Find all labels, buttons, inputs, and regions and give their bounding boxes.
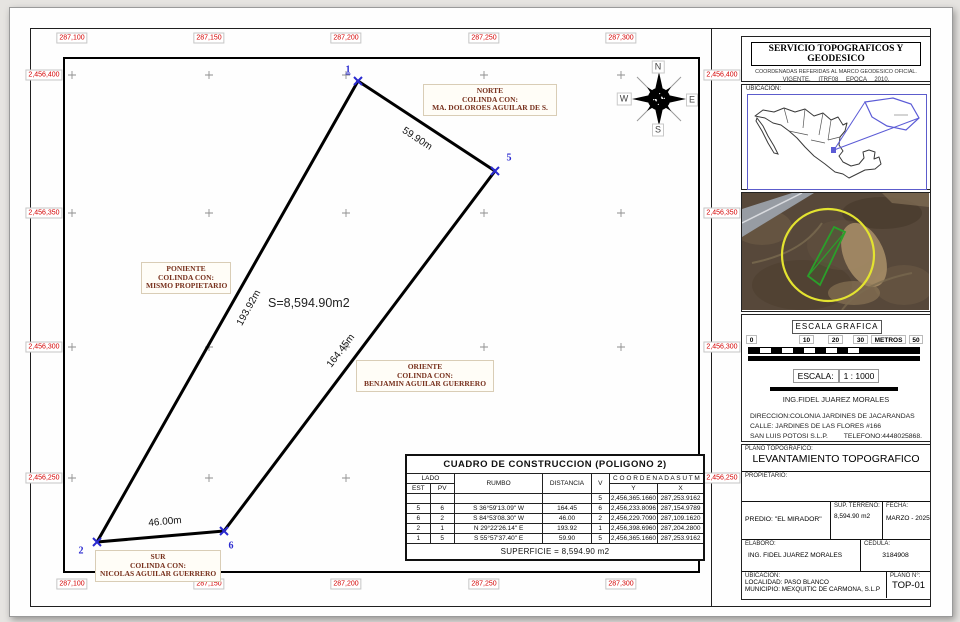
grid-x-label: 287,300 <box>605 33 636 44</box>
address-line-3: SAN LUIS POTOSI S.L.P. TELEFONO:44480258… <box>750 433 922 440</box>
elaboro-value: ING. FIDEL JUAREZ MORALES <box>742 547 860 559</box>
engineer-name: ING.FIDEL JUAREZ MORALES <box>742 395 930 404</box>
location-map-box: UBICACION: <box>741 84 931 190</box>
scale-ratio-row: ESCALA:1 : 1000 <box>742 366 930 384</box>
titleblock-row-plano: PLANO TOPOGRAFICO: LEVANTAMIENTO TOPOGRA… <box>742 445 930 471</box>
grid-x-label: 287,100 <box>56 579 87 590</box>
vertex-label-5: 5 <box>507 153 512 164</box>
slp-state-enlarged <box>865 98 919 130</box>
boundary-line: MISMO PROPIETARIO <box>146 282 226 291</box>
fecha-label: FECHA: <box>883 502 930 509</box>
col-header-y: Y <box>609 484 657 494</box>
boundary-east-box: ORIENTE COLINDA CON: BENJAMIN AGUILAR GU… <box>356 360 494 392</box>
elaboro-label: ELABORO: <box>742 540 860 547</box>
cedula-value: 3184908 <box>861 547 930 559</box>
scale-tick: 0 <box>746 335 757 344</box>
mexico-map <box>747 94 927 190</box>
grid-x-label: 287,150 <box>193 33 224 44</box>
address-line-2: CALLE: JARDINES DE LAS FLORES #166 <box>750 423 922 430</box>
firm-subtitle-1: COORDENADAS REFERIDAS AL MARCO GEODESICO… <box>742 69 930 75</box>
vertex-label-6: 6 <box>229 541 234 552</box>
boundary-south-box: SUR COLINDA CON: NICOLAS AGUILAR GUERRER… <box>95 550 221 582</box>
scale-bar-upper <box>748 347 920 354</box>
boundary-west-box: PONIENTE COLINDA CON: MISMO PROPIETARIO <box>141 262 231 294</box>
titleblock-row-propietario: PROPIETARIO: <box>742 471 930 501</box>
col-header-x: X <box>658 484 704 494</box>
state-boundaries <box>784 108 840 143</box>
compass-rose-icon <box>632 72 686 126</box>
vertex-label-1: 1 <box>346 65 351 76</box>
grid-y-label: 2,456,300 <box>25 342 62 353</box>
grid-y-label: 2,456,250 <box>703 473 740 484</box>
plan-title: LEVANTAMIENTO TOPOGRAFICO <box>742 453 930 465</box>
grid-y-label: 2,456,400 <box>703 70 740 81</box>
plano-no-value: TOP-01 <box>887 579 930 591</box>
plano-topografico-label: PLANO TOPOGRAFICO: <box>742 445 930 452</box>
scale-tick: 20 <box>828 335 843 344</box>
fecha-value: MARZO - 2025 <box>883 509 930 522</box>
boundary-line: BENJAMIN AGUILAR GUERRERO <box>361 380 489 389</box>
plano-no-label: PLANO N°: <box>887 572 930 579</box>
col-header-pv: PV <box>430 484 454 494</box>
title-block: PLANO TOPOGRAFICO: LEVANTAMIENTO TOPOGRA… <box>741 444 931 600</box>
scale-bar-lower <box>748 356 920 361</box>
signature-line <box>770 387 898 391</box>
scale-tick: 10 <box>799 335 814 344</box>
boundary-line: NICOLAS AGUILAR GUERRERO <box>100 570 216 579</box>
grid-y-label: 2,456,250 <box>25 473 62 484</box>
municipio-value: MUNICIPIO: MEXQUITIC DE CARMONA, S.L.P <box>742 586 886 593</box>
scale-tick: 50 <box>909 335 923 344</box>
city-text: SAN LUIS POTOSI S.L.P. <box>750 433 828 440</box>
grid-x-label: 287,250 <box>468 33 499 44</box>
table-row: 62S 84°53'08.30" W 46.0022,456,229.70902… <box>406 514 704 524</box>
escala-label: ESCALA: <box>793 369 839 383</box>
scale-units: METROS <box>871 335 906 344</box>
grid-x-label: 287,200 <box>330 579 361 590</box>
table-superficie: SUPERFICIE = 8,594.90 m2 <box>406 544 704 561</box>
escala-grafica-title: ESCALA GRAFICA <box>792 320 882 334</box>
grid-x-label: 287,250 <box>468 579 499 590</box>
grid-x-label: 287,100 <box>56 33 87 44</box>
col-header-est: EST <box>406 484 430 494</box>
titleblock-row-elaboro: ELABORO: ING. FIDEL JUAREZ MORALES CEDUL… <box>742 539 930 571</box>
grid-y-label: 2,456,350 <box>703 208 740 219</box>
col-header-lado: LADO <box>406 474 454 484</box>
col-header-distancia: DISTANCIA <box>543 474 591 494</box>
firm-title: SERVICIO TOPOGRAFICOS Y GEODESICO <box>751 42 921 66</box>
localidad-value: LOCALIDAD: PASO BLANCO <box>742 579 886 586</box>
surface-area-label: S=8,594.90m2 <box>268 296 350 310</box>
grid-x-label: 287,300 <box>605 579 636 590</box>
ubicacion-label: UBICACION: <box>746 86 781 92</box>
compass-w-label: W <box>617 93 632 106</box>
table-row: 21N 29°22'26.14" E 193.9212,456,398.6960… <box>406 524 704 534</box>
cedula-label: CEDULA: <box>861 540 930 547</box>
col-header-rumbo: RUMBO <box>454 474 543 494</box>
table-row: 56S 36°59'13.09" W 164.4562,456,233.8096… <box>406 504 704 514</box>
scale-box: ESCALA GRAFICA 0 10 20 30 METROS 50 ESCA… <box>741 314 931 442</box>
sidebar-header-box: SERVICIO TOPOGRAFICOS Y GEODESICO COORDE… <box>741 36 931 82</box>
compass-e-label: E <box>686 94 698 107</box>
tb-ubicacion-label: UBICACION: <box>742 572 886 579</box>
mexico-map-svg <box>748 95 926 189</box>
sup-terreno-value: 8,594.90 m2 <box>831 509 882 520</box>
compass-n-label: N <box>652 61 665 74</box>
mexico-outline <box>755 108 881 178</box>
satellite-photo-box <box>741 192 931 312</box>
sup-terreno-label: SUP. TERRENO: <box>831 502 882 509</box>
titleblock-row-predio: PREDIO: "EL MIRADOR" SUP. TERRENO: 8,594… <box>742 501 930 539</box>
titleblock-row-ubicacion: UBICACION: LOCALIDAD: PASO BLANCO MUNICI… <box>742 571 930 598</box>
predio-value: PREDIO: "EL MIRADOR" <box>742 502 830 523</box>
escala-value: 1 : 1000 <box>839 369 880 383</box>
compass-s-label: S <box>652 124 664 137</box>
survey-plan-canvas: 287,100 287,150 287,200 287,250 287,300 … <box>0 0 960 622</box>
construction-table: CUADRO DE CONSTRUCCION (POLIGONO 2) LADO… <box>405 454 705 561</box>
grid-y-label: 2,456,400 <box>25 70 62 81</box>
satellite-photo <box>742 193 929 310</box>
table-row: 52,456,365.1660287,253.9162 <box>406 494 704 504</box>
grid-y-label: 2,456,350 <box>25 208 62 219</box>
vertex-label-2: 2 <box>79 546 84 557</box>
grid-y-label: 2,456,300 <box>703 342 740 353</box>
phone-text: TELEFONO:4448025868. <box>844 433 922 440</box>
col-header-v: V <box>591 474 609 494</box>
scale-tick: 30 <box>853 335 868 344</box>
boundary-north-box: NORTE COLINDA CON: MA. DOLOROES AGUILAR … <box>423 84 557 116</box>
slp-location-marker <box>831 147 836 153</box>
address-line-1: DIRECCION:COLONIA JARDINES DE JACARANDAS <box>750 413 922 420</box>
propietario-label: PROPIETARIO: <box>742 472 930 479</box>
grid-x-label: 287,200 <box>330 33 361 44</box>
firm-subtitle-2: VIGENTE. ITRF08 EPOCA 2010. <box>742 77 930 83</box>
col-header-coordenadas: C O O R D E N A D A S U T M <box>609 474 704 484</box>
table-row: 15S 55°57'37.40" E 59.9052,456,365.16602… <box>406 534 704 544</box>
table-title: CUADRO DE CONSTRUCCION (POLIGONO 2) <box>406 455 704 474</box>
boundary-line: MA. DOLOROES AGUILAR DE S. <box>428 104 552 113</box>
